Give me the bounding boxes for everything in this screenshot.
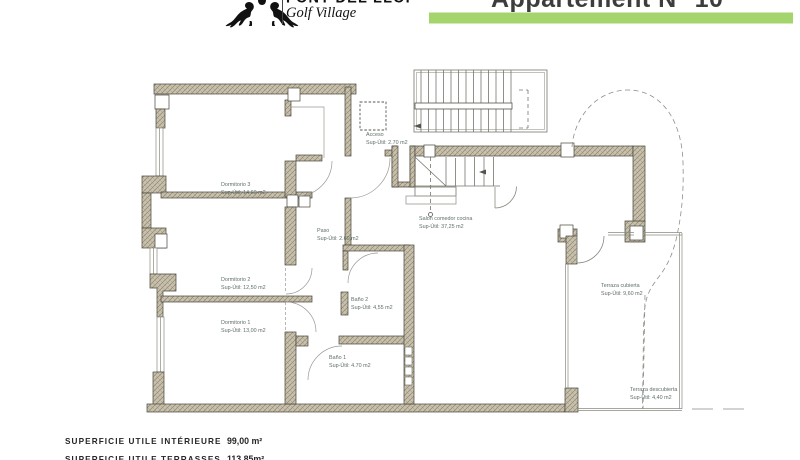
svg-text:Sup-Útil: 2.60 m2: Sup-Útil: 2.60 m2 [317,235,359,242]
svg-text:SUPERFICIE UTILE INTÉRIEURE: SUPERFICIE UTILE INTÉRIEURE [65,436,222,446]
svg-text:Acceso: Acceso [366,132,384,138]
svg-text:Terraza descubierta: Terraza descubierta [630,387,677,393]
svg-text:Sup-Útil: 4,40 m2: Sup-Útil: 4,40 m2 [630,394,672,401]
svg-text:99,00 m²: 99,00 m² [227,436,262,446]
svg-text:Dormitorio 3: Dormitorio 3 [221,182,250,188]
svg-text:Sup-Útil: 4,55 m2: Sup-Útil: 4,55 m2 [351,304,393,311]
svg-text:Paso: Paso [317,228,329,234]
svg-text:Sup-Útil: 14.60 m2: Sup-Útil: 14.60 m2 [221,189,266,196]
svg-text:SUPERFICIE UTILE TERRASSES: SUPERFICIE UTILE TERRASSES [65,455,221,460]
svg-text:Sup-Útil: 37,25 m2: Sup-Útil: 37,25 m2 [419,223,464,230]
svg-text:Sup-Útil: 2.70 m2: Sup-Útil: 2.70 m2 [366,139,408,146]
svg-text:Terraza cubierta: Terraza cubierta [601,283,640,289]
svg-text:Appartement N° 10: Appartement N° 10 [491,0,723,13]
svg-text:Sup-Útil: 12,50 m2: Sup-Útil: 12,50 m2 [221,284,266,291]
svg-text:Sup-Útil: 9,60 m2: Sup-Útil: 9,60 m2 [601,290,643,297]
svg-text:Baño 2: Baño 2 [351,297,368,303]
svg-text:Baño 1: Baño 1 [329,355,346,361]
svg-text:Salon comedor cocina: Salon comedor cocina [419,216,472,222]
svg-text:Dormitorio 1: Dormitorio 1 [221,320,250,326]
svg-text:Dormitorio 2: Dormitorio 2 [221,277,250,283]
svg-text:Sup-Útil: 4.70 m2: Sup-Útil: 4.70 m2 [329,362,371,369]
svg-text:Sup-Útil: 13,00 m2: Sup-Útil: 13,00 m2 [221,327,266,334]
svg-text:Golf Village: Golf Village [286,5,357,21]
svg-text:113,85m²: 113,85m² [227,454,264,460]
